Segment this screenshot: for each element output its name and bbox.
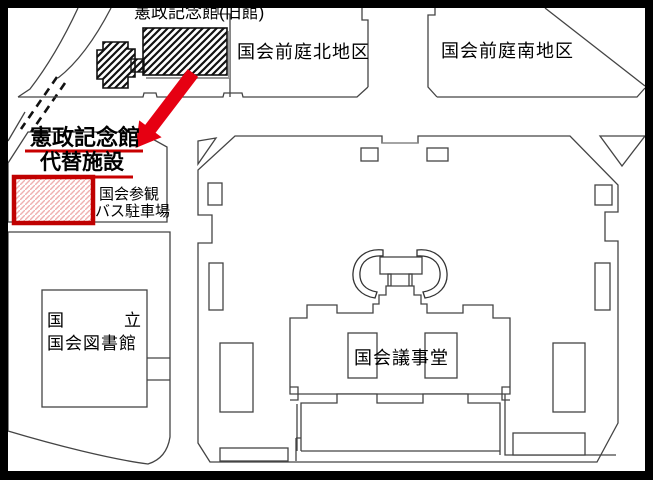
- grounds-building-e2: [553, 343, 585, 412]
- rear-building-west: [220, 448, 288, 461]
- grounds-building-w2: [220, 343, 253, 412]
- library-label-line2: 国会図書館: [47, 335, 137, 353]
- bus-parking-label-line1: 国会参観: [99, 187, 159, 203]
- site-map: 憲政記念館(旧館) 国会前庭北地区 国会前庭南地区 憲政記念館 代替施設 国会参…: [0, 0, 653, 480]
- grounds-building-ne: [595, 185, 612, 205]
- diet-building-label: 国会議事堂: [354, 349, 449, 368]
- frame-right: [645, 0, 653, 480]
- old-hall-main-building: [143, 28, 227, 75]
- diet-front-portico: [380, 257, 422, 274]
- library-label-line1-left: 国: [47, 312, 64, 330]
- south-garden-label: 国会前庭南地区: [441, 42, 574, 61]
- bus-parking-label-line2: バス駐車場: [95, 204, 170, 220]
- map-canvas: [0, 0, 653, 480]
- rear-building-east: [513, 433, 585, 455]
- grounds-building-e1: [595, 263, 610, 310]
- frame-top: [0, 0, 653, 8]
- highlight-site-box: [14, 177, 93, 223]
- library-label-line1-right: 立: [124, 312, 141, 330]
- gate-post-west: [361, 148, 378, 161]
- gate-post-east: [427, 148, 448, 161]
- grounds-building-nw: [208, 183, 222, 205]
- frame-left: [0, 0, 8, 480]
- frame-bottom: [0, 471, 653, 480]
- grounds-building-w1: [209, 263, 223, 310]
- old-hall-label: 憲政記念館(旧館): [134, 4, 264, 22]
- annex-facility-label-line1: 憲政記念館: [26, 126, 144, 149]
- north-garden-label: 国会前庭北地区: [237, 43, 370, 62]
- diet-rear-annex: [301, 394, 500, 455]
- library-label-line1: 国 立: [47, 312, 141, 330]
- annex-facility-label-line2: 代替施設: [26, 152, 138, 174]
